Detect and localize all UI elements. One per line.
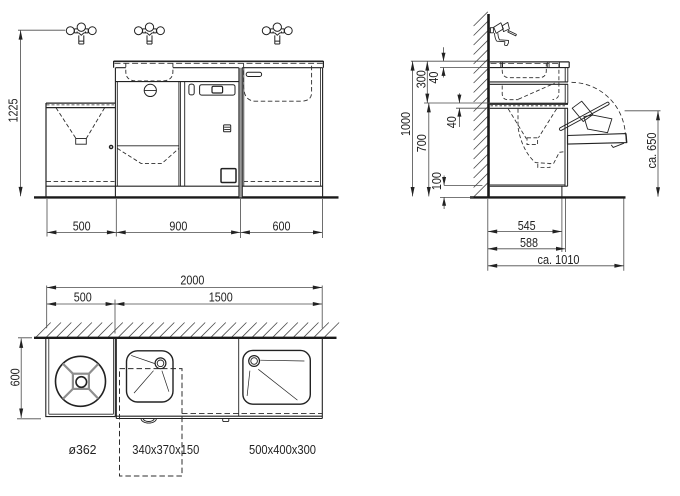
svg-text:1500: 1500 [209,290,233,305]
svg-text:340x370x150: 340x370x150 [132,442,199,457]
svg-text:ca. 650: ca. 650 [644,133,659,169]
svg-text:1000: 1000 [398,112,413,136]
svg-text:500: 500 [74,290,92,305]
svg-text:600: 600 [273,219,291,234]
svg-text:500x400x300: 500x400x300 [249,442,316,457]
svg-text:600: 600 [8,368,23,386]
svg-text:40: 40 [426,72,441,84]
svg-text:545: 545 [518,218,536,233]
svg-text:2000: 2000 [180,273,204,288]
svg-text:1225: 1225 [5,99,20,123]
svg-text:ca. 1010: ca. 1010 [538,252,580,267]
svg-text:700: 700 [414,134,429,152]
svg-text:100: 100 [429,172,444,190]
svg-text:40: 40 [444,116,459,128]
svg-text:588: 588 [520,235,538,250]
svg-text:ø362: ø362 [69,442,97,457]
svg-text:500: 500 [73,219,91,234]
svg-text:900: 900 [169,219,187,234]
